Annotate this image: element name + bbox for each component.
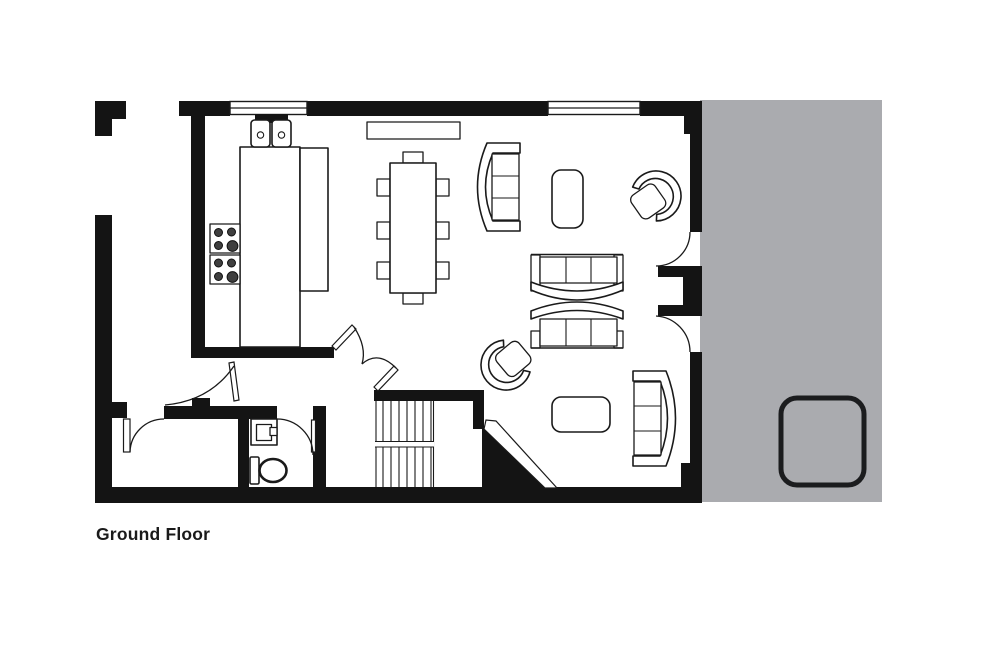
- coffee-table-icon: [552, 397, 610, 432]
- staircase-icon: [375, 401, 434, 487]
- sideboard-icon: [367, 122, 460, 139]
- floor-plan-page: Ground Floor: [0, 0, 1000, 667]
- living-furniture: [471, 143, 691, 466]
- terrace-door-swing: [656, 316, 690, 352]
- window-icon: [230, 102, 307, 115]
- double-door-swing: [362, 358, 396, 368]
- entry-door-leaf: [124, 419, 131, 452]
- hall-door-leaf: [229, 362, 239, 401]
- sofa-icon: [478, 143, 521, 231]
- dining-chair-icon: [403, 293, 423, 304]
- double-door-leaf: [374, 366, 398, 391]
- hot-tub-icon: [781, 398, 864, 485]
- terrace-area: [700, 100, 882, 502]
- terrace-door-swing: [656, 232, 690, 266]
- washbasin-icon: [251, 419, 277, 445]
- sofa-icon: [531, 255, 623, 301]
- dining-chair-icon: [403, 152, 423, 163]
- kitchen-fixtures: [210, 114, 328, 347]
- plan-title: Ground Floor: [96, 524, 210, 545]
- kitchen-counter: [240, 147, 300, 347]
- double-sink-icon: [251, 114, 291, 147]
- sofa-icon: [531, 302, 623, 348]
- dining-chair-icon: [436, 179, 449, 196]
- armchair-icon: [622, 161, 691, 230]
- dining-furniture: [367, 122, 460, 304]
- dining-table-icon: [390, 163, 436, 293]
- dining-chair-icon: [377, 179, 390, 196]
- wc-fixtures: [250, 419, 287, 484]
- kitchen-counter-return: [300, 148, 328, 291]
- dining-chair-icon: [436, 222, 449, 239]
- dining-chair-icon: [377, 222, 390, 239]
- entry-door-swing: [130, 419, 164, 452]
- window-icon: [548, 102, 640, 115]
- coffee-table-icon: [552, 170, 583, 228]
- double-door-leaf: [332, 325, 356, 350]
- toilet-icon: [250, 457, 287, 484]
- wc-door-swing: [277, 419, 313, 455]
- floor-plan-drawing: [0, 0, 1000, 667]
- armchair-icon: [471, 330, 541, 400]
- cooktop-icon: [210, 224, 240, 284]
- dining-chair-icon: [436, 262, 449, 279]
- double-door-swing: [354, 327, 363, 364]
- sofa-icon: [633, 371, 676, 466]
- dining-chair-icon: [377, 262, 390, 279]
